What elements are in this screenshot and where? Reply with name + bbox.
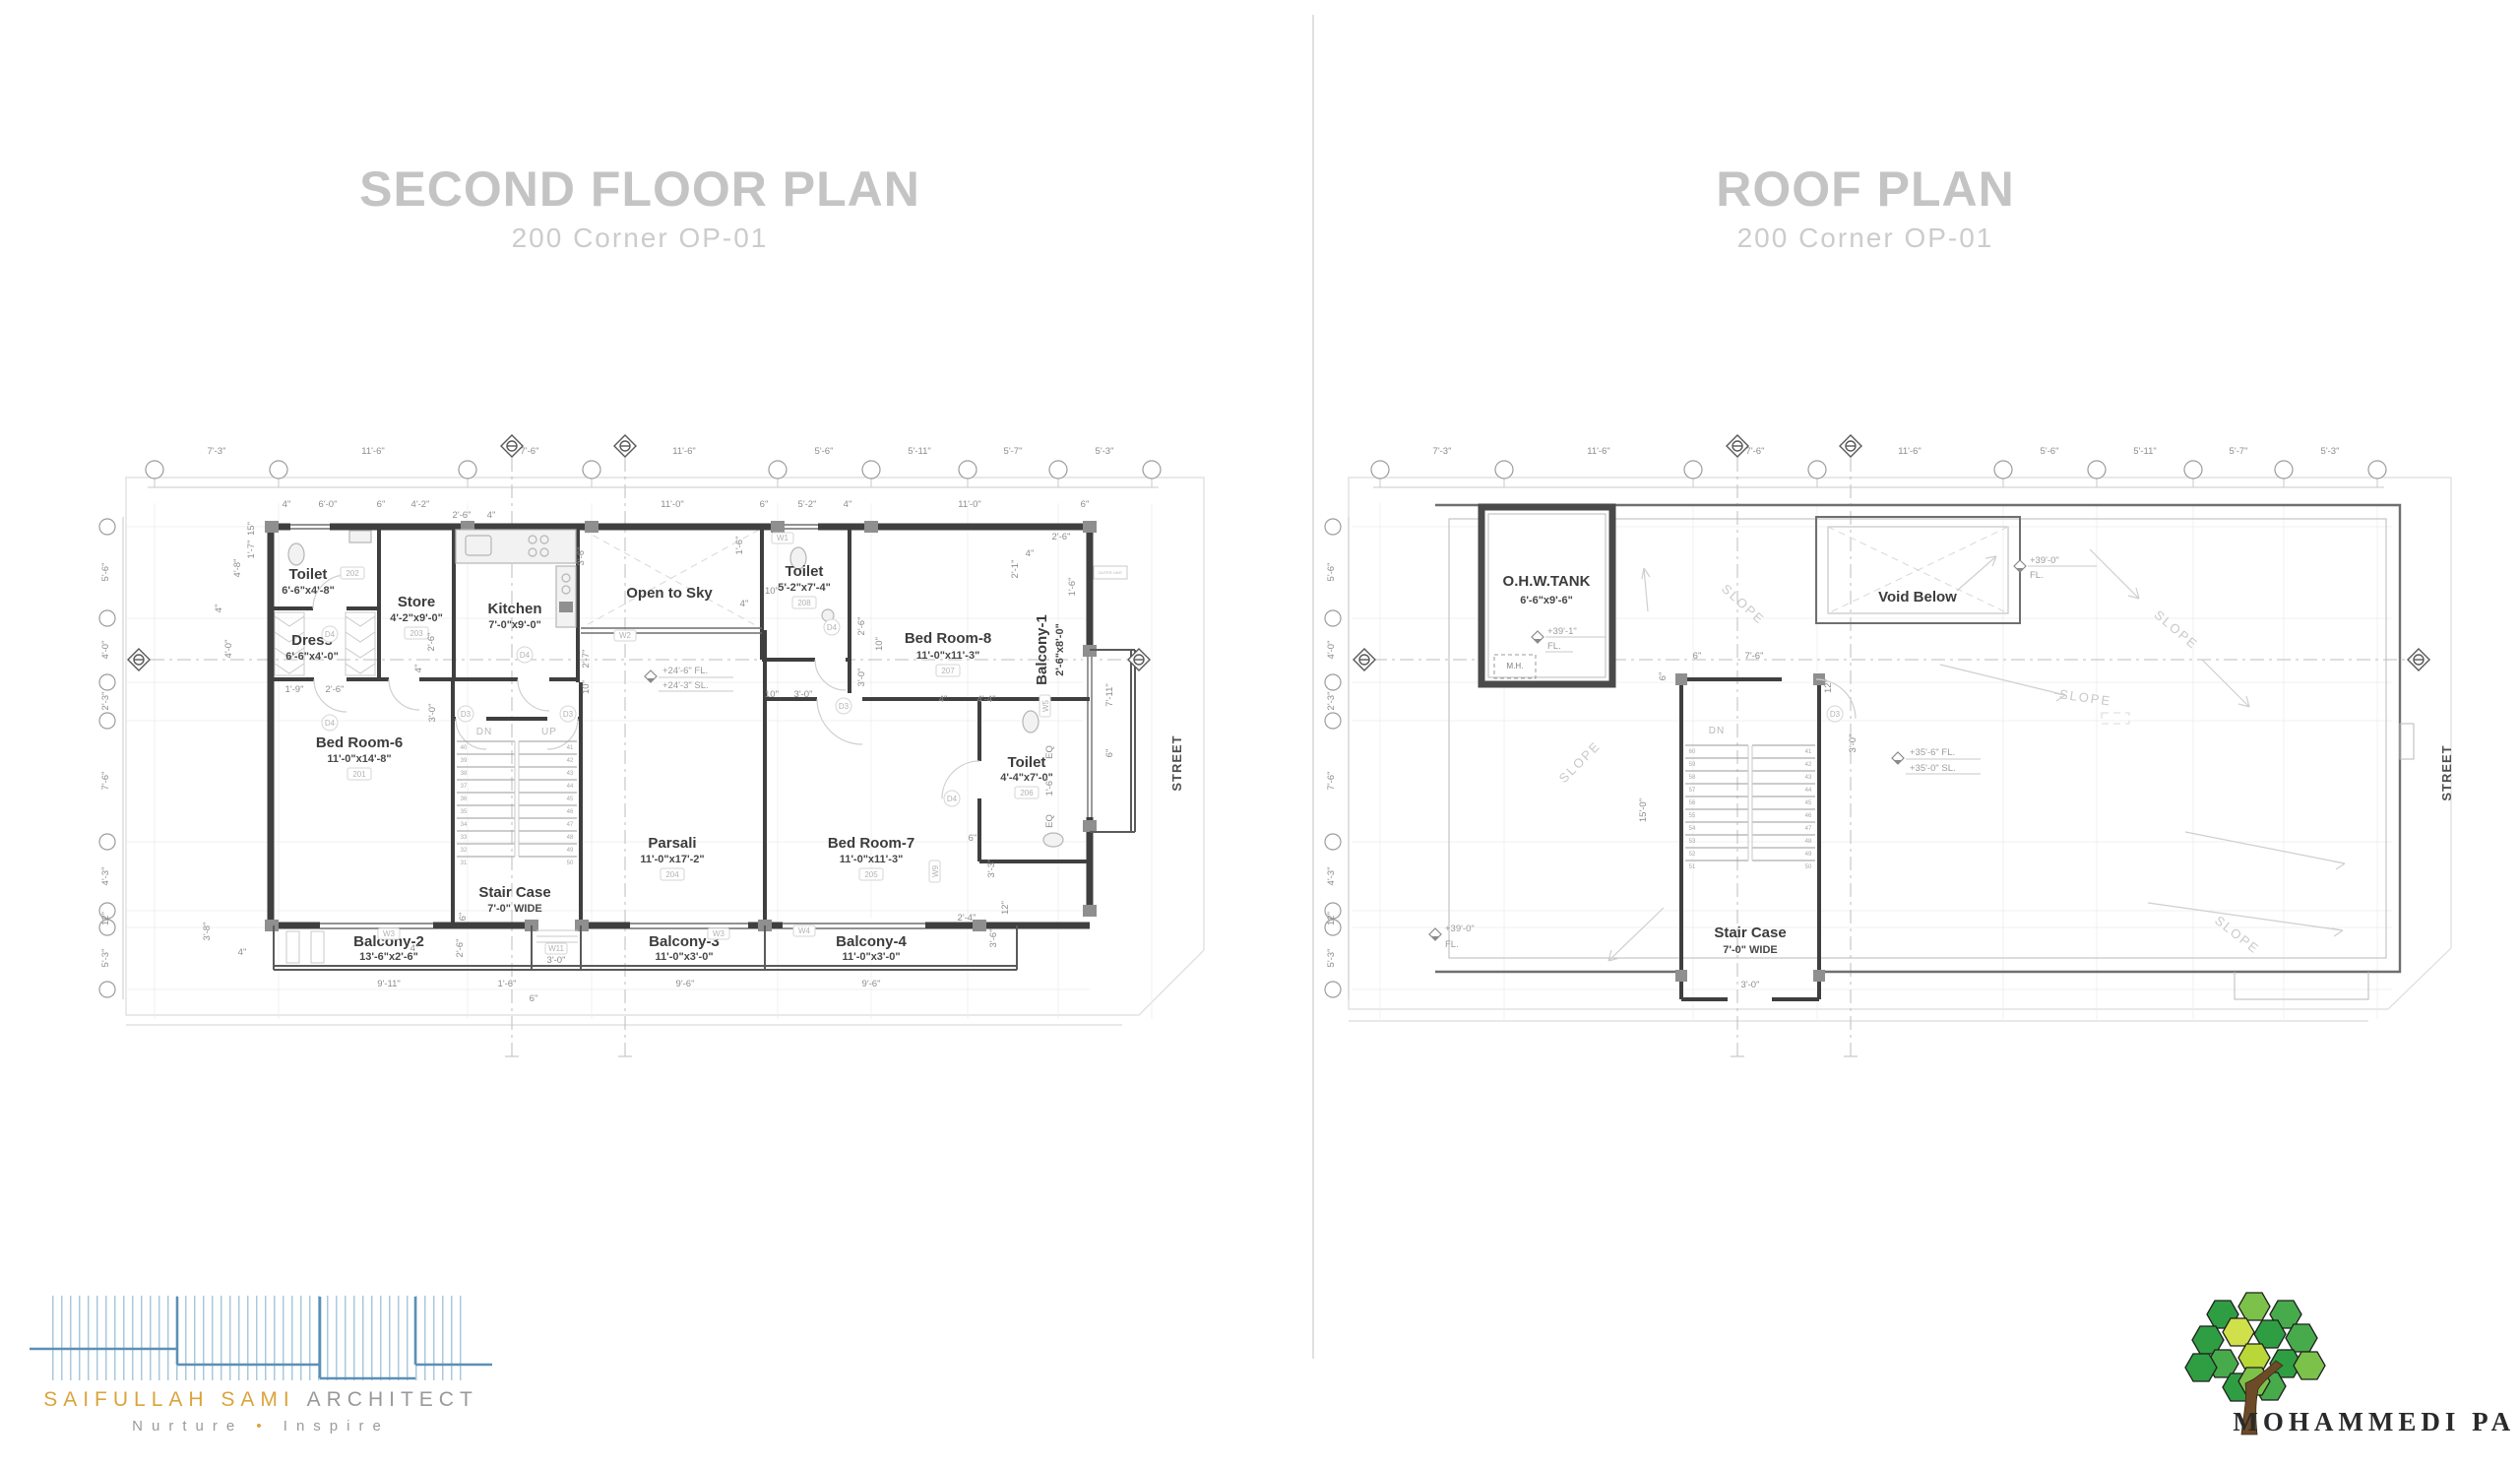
room-name: Balcony-4: [836, 933, 907, 950]
door-tag: D4: [827, 623, 838, 632]
roof-staircase: DN 60 59 58 57 56 55 54 53 52 51 41 42 4…: [1675, 673, 1856, 999]
dim: 7'-6": [1745, 651, 1764, 662]
room-size: 11'-0"x17'-2": [640, 854, 704, 865]
architect-name-accent: SAIFULLAH SAMI: [43, 1388, 295, 1411]
dim: 2'-4": [958, 913, 976, 924]
grid-dim: 12": [100, 912, 111, 925]
logo-step-line: [30, 1292, 492, 1385]
dim: 5'-2": [798, 499, 817, 510]
dim: EQ: [1044, 745, 1055, 759]
room-size: 7'-0"x9'-0": [488, 619, 541, 631]
room-tag: 204: [665, 870, 679, 879]
grid-dim: 7'-3": [1433, 446, 1452, 457]
riser: 47: [567, 822, 574, 828]
dim: 6": [1693, 651, 1702, 662]
dim: 1'-9": [285, 684, 304, 695]
door-tag: D3: [839, 702, 850, 711]
grid-left: 5'-6" 4'-0" 2'-3" 7'-6" 4'-3" 12" 5'-3": [99, 517, 150, 999]
dim: 3'-3": [986, 860, 997, 878]
riser: 46: [1805, 813, 1812, 819]
grid-dim: 2'-3": [1326, 692, 1337, 711]
dim: 12": [1823, 679, 1834, 693]
grid-dim: 5'-11": [2133, 446, 2157, 457]
stair-size: 7'-0" WIDE: [1723, 944, 1778, 956]
tagline-word: Inspire: [283, 1418, 390, 1434]
dim: 6": [458, 913, 469, 922]
dim: 2'-6": [426, 633, 437, 652]
riser: 50: [567, 860, 574, 866]
riser: 56: [1689, 800, 1696, 806]
dim: 2'-7": [581, 650, 592, 669]
slope-label: SLOPE: [2152, 607, 2202, 653]
riser: 49: [1805, 852, 1812, 858]
slope-label: SLOPE: [2212, 913, 2262, 957]
tank-name: O.H.W.TANK: [1503, 573, 1591, 590]
dim: 3'-0": [427, 704, 438, 723]
manhole-label: M.H.: [1507, 662, 1524, 670]
dim: 1'-6": [1067, 578, 1078, 597]
room-size: 2'-6"x8'-0": [1054, 623, 1066, 676]
room-name: Balcony-1: [1034, 614, 1050, 685]
dim: 3'-0": [1741, 980, 1760, 990]
dim: 10": [581, 680, 592, 694]
riser: 53: [1689, 839, 1696, 845]
second-floor-plan: OUTER UNIT DN UP 40 39 38 37 36 35 34 33…: [94, 418, 1240, 1068]
room-tag: 206: [1020, 789, 1034, 797]
dim: 6": [1081, 499, 1090, 510]
riser: 40: [461, 745, 468, 751]
dim: 4": [844, 499, 852, 510]
dim: 4": [740, 599, 749, 609]
stair-dn: DN: [476, 727, 492, 737]
tank-elev: +39'-1": [1547, 626, 1577, 637]
dim: 3'-8": [202, 923, 213, 941]
riser: 35: [461, 809, 468, 815]
window-tag: W9: [931, 864, 940, 877]
window-tag: W11: [548, 944, 564, 953]
room-name: Bed Room-8: [905, 630, 991, 647]
riser: 57: [1689, 788, 1696, 794]
grid-dim: 7'-3": [208, 446, 226, 457]
riser: 43: [567, 771, 574, 777]
dim: 7'-11": [1104, 683, 1115, 707]
roof-elevations: +35'-6" FL. +35'-0" SL. +39'-0" FL.: [1429, 747, 1981, 950]
tagline-bullet: •: [256, 1418, 270, 1434]
grid-dim: 5'-6": [1326, 563, 1337, 582]
dim: 9'-6": [862, 979, 881, 989]
tank-size: 6'-6"x9'-6": [1520, 595, 1573, 606]
grid-dim: 5'-6": [2041, 446, 2059, 457]
dim: 2'-6": [1052, 532, 1071, 542]
mid-elev-fl: +35'-6" FL.: [1910, 747, 1955, 758]
dim: EQ: [1044, 814, 1055, 828]
room-name: Bed Room-6: [316, 734, 403, 751]
open-to-sky-cross: [583, 530, 759, 627]
riser: 44: [1805, 788, 1812, 794]
grid-dim: 11'-6": [361, 446, 385, 457]
w2-window: [581, 628, 762, 633]
riser: 43: [1805, 775, 1812, 781]
tagline-word: Nurture: [132, 1418, 243, 1434]
grid-dim: 5'-3": [1326, 949, 1337, 968]
street-side: STREET: [2408, 649, 2454, 801]
room-name: Toilet: [289, 566, 328, 583]
room-name: Toilet: [1008, 754, 1046, 771]
room-name: Stair Case: [478, 884, 550, 901]
room-size: 11'-0"x3'-0": [842, 951, 900, 963]
riser: 52: [1689, 852, 1696, 858]
riser: 54: [1689, 826, 1696, 832]
dim: 4": [214, 605, 224, 613]
architect-name: SAIFULLAH SAMI ARCHITECT: [30, 1388, 492, 1412]
room-tag: 203: [409, 629, 423, 638]
riser: 59: [1689, 762, 1696, 768]
elevation-marker: +24'-6" FL. +24'-3" SL.: [645, 666, 733, 691]
riser: 50: [1805, 864, 1812, 870]
dim: 4'-0": [223, 640, 234, 659]
room-tag: 202: [346, 569, 359, 578]
room-name: Store: [398, 594, 435, 610]
room-name: Toilet: [786, 563, 824, 580]
dim: 6": [1104, 749, 1115, 758]
room-size: 11'-0"x11'-3": [840, 854, 904, 865]
dim: 9'-6": [676, 979, 695, 989]
dim: 6": [530, 993, 538, 1004]
dim: 4": [410, 943, 419, 954]
dim: 10": [874, 637, 885, 651]
window-tag: W2: [619, 631, 632, 640]
street-label: STREET: [1169, 734, 1184, 791]
dim: 4'-2": [411, 499, 430, 510]
riser: 48: [567, 835, 574, 841]
dim: 2'-6": [856, 617, 867, 636]
slope-label: SLOPE: [1556, 738, 1604, 786]
room-tag: 207: [941, 667, 955, 675]
park-logo: MOHAMMEDI PARK: [2161, 1285, 2515, 1462]
dim: 10": [765, 689, 779, 700]
room-size: 6'-6"x4'-8": [282, 585, 335, 597]
dim: 15": [246, 522, 257, 536]
void-elev: +39'-0": [2030, 555, 2059, 566]
grid-dim: 11'-6": [672, 446, 696, 457]
grid-dim: 5'-3": [100, 949, 111, 968]
dim: 4": [413, 665, 424, 673]
room-tag: 205: [864, 870, 878, 879]
riser: 49: [567, 848, 574, 854]
dim: 6": [1658, 672, 1669, 681]
room-size: 6'-6"x4'-0": [285, 651, 339, 663]
dim: 11'-0": [958, 499, 981, 510]
grid-dim: 12": [1326, 912, 1337, 925]
dim: 3'-0": [794, 689, 813, 700]
grid-dim: 4'-3": [100, 867, 111, 886]
outer-unit-label: OUTER UNIT: [1099, 570, 1123, 575]
dim: 2'-6": [455, 939, 466, 958]
grid-dim: 4'-3": [1326, 867, 1337, 886]
void-label: Void Below: [1878, 589, 1957, 606]
riser: 34: [461, 822, 468, 828]
window-tag: W4: [798, 926, 811, 935]
roof-plan: O.H.W.TANK 6'-6"x9'-6" +39'-1" FL. M.H. …: [1319, 418, 2500, 1068]
room-size: 7'-0" WIDE: [487, 903, 542, 915]
slope-label: SLOPE: [1719, 581, 1768, 627]
grid-dim: 5'-3": [2321, 446, 2340, 457]
dim: 2'-1": [1010, 560, 1021, 579]
dim: 3'-0": [856, 669, 867, 687]
dim: 3'-0": [547, 955, 566, 966]
dim: 3'-6": [576, 547, 587, 566]
room-name: Open to Sky: [626, 585, 713, 602]
door-tag: D3: [563, 710, 574, 719]
riser: 33: [461, 835, 468, 841]
door-tag: D4: [947, 795, 958, 803]
riser: 60: [1689, 749, 1696, 755]
tank-fl: FL.: [1547, 641, 1561, 652]
grid-left: 5'-6" 4'-0" 2'-3" 7'-6" 4'-3" 12" 5'-3": [1325, 517, 1375, 999]
grid-dim: 5'-11": [908, 446, 931, 457]
riser: 45: [567, 797, 574, 802]
riser: 31: [461, 860, 468, 866]
mid-elev-sl: +35'-0" SL.: [1910, 763, 1956, 774]
dim: 11'-0": [661, 499, 684, 510]
dim: 10": [765, 586, 779, 597]
dim: 3'-0": [1848, 734, 1858, 753]
door-tag: D4: [325, 630, 336, 639]
grid-dim: 5'-7": [2230, 446, 2248, 457]
dim: 9'-11": [377, 979, 401, 989]
stair-up: UP: [541, 727, 557, 737]
grid-dim: 2'-3": [100, 692, 111, 711]
stair-name: Stair Case: [1714, 924, 1786, 941]
riser: 37: [461, 784, 468, 790]
dim: 4": [238, 947, 247, 958]
dim: 6": [760, 499, 769, 510]
dim: 4'-4": [977, 694, 996, 705]
room-size: 4'-2"x9'-0": [390, 612, 443, 624]
door-tag: D4: [325, 719, 336, 728]
riser: 45: [1805, 800, 1812, 806]
street-side: STREET: [1128, 649, 1184, 792]
dim: 6": [377, 499, 386, 510]
ohw-tank: O.H.W.TANK 6'-6"x9'-6" +39'-1" FL. M.H.: [1481, 507, 1612, 684]
void-elev-fl: FL.: [2030, 570, 2044, 581]
grid-dim: 7'-6": [100, 772, 111, 791]
room-size: 11'-0"x3'-0": [655, 951, 713, 963]
street-label: STREET: [2439, 744, 2454, 800]
grid-dim: 7'-6": [1746, 446, 1765, 457]
grid-dim: 7'-6": [1326, 772, 1337, 791]
dim: 2'-6": [453, 510, 472, 521]
dim: 1'-6": [734, 537, 745, 555]
architect-logo: SAIFULLAH SAMI ARCHITECT Nurture • Inspi…: [30, 1292, 492, 1461]
dim: 3'-6": [988, 929, 999, 948]
room-name: Parsali: [648, 835, 696, 852]
room-size: 11'-0"x14'-8": [327, 753, 391, 765]
grid-dim: 5'-7": [1004, 446, 1023, 457]
room-size: 5'-2"x7'-4": [778, 582, 831, 594]
riser: 55: [1689, 813, 1696, 819]
riser: 51: [1689, 864, 1696, 870]
window-tag: W3: [383, 929, 396, 938]
left-elev: +39'-0": [1445, 924, 1475, 934]
door-tag: D4: [520, 651, 531, 660]
grid-dim: 11'-6": [1898, 446, 1921, 457]
riser: 42: [567, 758, 574, 764]
dim: 6": [969, 833, 977, 844]
riser: 41: [567, 745, 574, 751]
door-tag: D3: [461, 710, 472, 719]
window-tag: W1: [777, 534, 789, 542]
elevation-sl: +24'-3" SL.: [662, 680, 709, 691]
dim: 4": [487, 510, 496, 521]
architect-tagline: Nurture • Inspire: [30, 1418, 492, 1434]
grid-top: 7'-3" 11'-6" 7'-6" 11'-6" 5'-6" 5'-11" 5…: [1371, 435, 2386, 487]
riser: 32: [461, 848, 468, 854]
room-name: Bed Room-7: [828, 835, 914, 852]
dim: 4": [1026, 548, 1035, 559]
grid-dim: 7'-6": [521, 446, 539, 457]
riser: 42: [1805, 762, 1812, 768]
door-tags: D4 D4 D4 D3 D3 D4 D3 D4: [322, 619, 960, 806]
center-divider: [1312, 15, 1314, 1359]
grid-dim: 11'-6": [1587, 446, 1610, 457]
dim: 1'-7": [246, 541, 257, 559]
dim: 2'-6": [326, 684, 345, 695]
void-below: Void Below +39'-0" FL.: [1816, 517, 2097, 623]
riser: 38: [461, 771, 468, 777]
grid-dim: 4'-0": [1326, 641, 1337, 660]
grid-dim: 5'-3": [1096, 446, 1114, 457]
architect-name-rest: ARCHITECT: [307, 1388, 478, 1411]
dim: 15'-0": [1638, 798, 1649, 822]
riser: 58: [1689, 775, 1696, 781]
dim: 12": [1000, 901, 1011, 915]
left-elev-fl: FL.: [1445, 939, 1459, 950]
window-tag: W5: [1041, 699, 1050, 712]
dim: 4": [939, 694, 948, 705]
room-tag: 201: [352, 770, 366, 779]
riser: 36: [461, 797, 468, 802]
door-tag: D3: [1830, 710, 1841, 719]
room-tag: 208: [797, 599, 811, 607]
dim: 1'-6": [1044, 778, 1055, 797]
riser: 48: [1805, 839, 1812, 845]
slope-label: SLOPE: [2058, 686, 2112, 708]
roof-subtitle: 200 Corner OP-01: [1560, 223, 2171, 254]
dim: 1'-6": [498, 979, 517, 989]
riser: 46: [567, 809, 574, 815]
riser: 41: [1805, 749, 1812, 755]
room-size: 11'-0"x11'-3": [916, 650, 980, 662]
riser: 44: [567, 784, 574, 790]
dim: 4'-8": [232, 559, 243, 578]
second-floor-subtitle: 200 Corner OP-01: [335, 223, 945, 254]
second-floor-title: SECOND FLOOR PLAN: [335, 160, 945, 218]
dim: 6'-0": [319, 499, 338, 510]
riser: 47: [1805, 826, 1812, 832]
window-tag: W3: [713, 929, 725, 938]
room-labels: Toilet 6'-6"x4'-8" 202 Store 4'-2"x9'-0"…: [282, 563, 1066, 963]
riser: 39: [461, 758, 468, 764]
drawing-sheet: SECOND FLOOR PLAN 200 Corner OP-01 ROOF …: [0, 0, 2520, 1466]
dim: 4": [283, 499, 291, 510]
stair-dn: DN: [1709, 726, 1725, 736]
grid-dim: 5'-6": [815, 446, 834, 457]
elevation-fl: +24'-6" FL.: [662, 666, 708, 676]
grid-top: 7'-3" 11'-6" 7'-6" 11'-6" 5'-6" 5'-11" 5…: [146, 435, 1161, 487]
room-name: Kitchen: [487, 601, 541, 617]
park-name: MOHAMMEDI PARK: [2233, 1407, 2515, 1436]
grid-dim: 5'-6": [100, 563, 111, 582]
grid-dim: 4'-0": [100, 641, 111, 660]
roof-title: ROOF PLAN: [1560, 160, 2171, 218]
